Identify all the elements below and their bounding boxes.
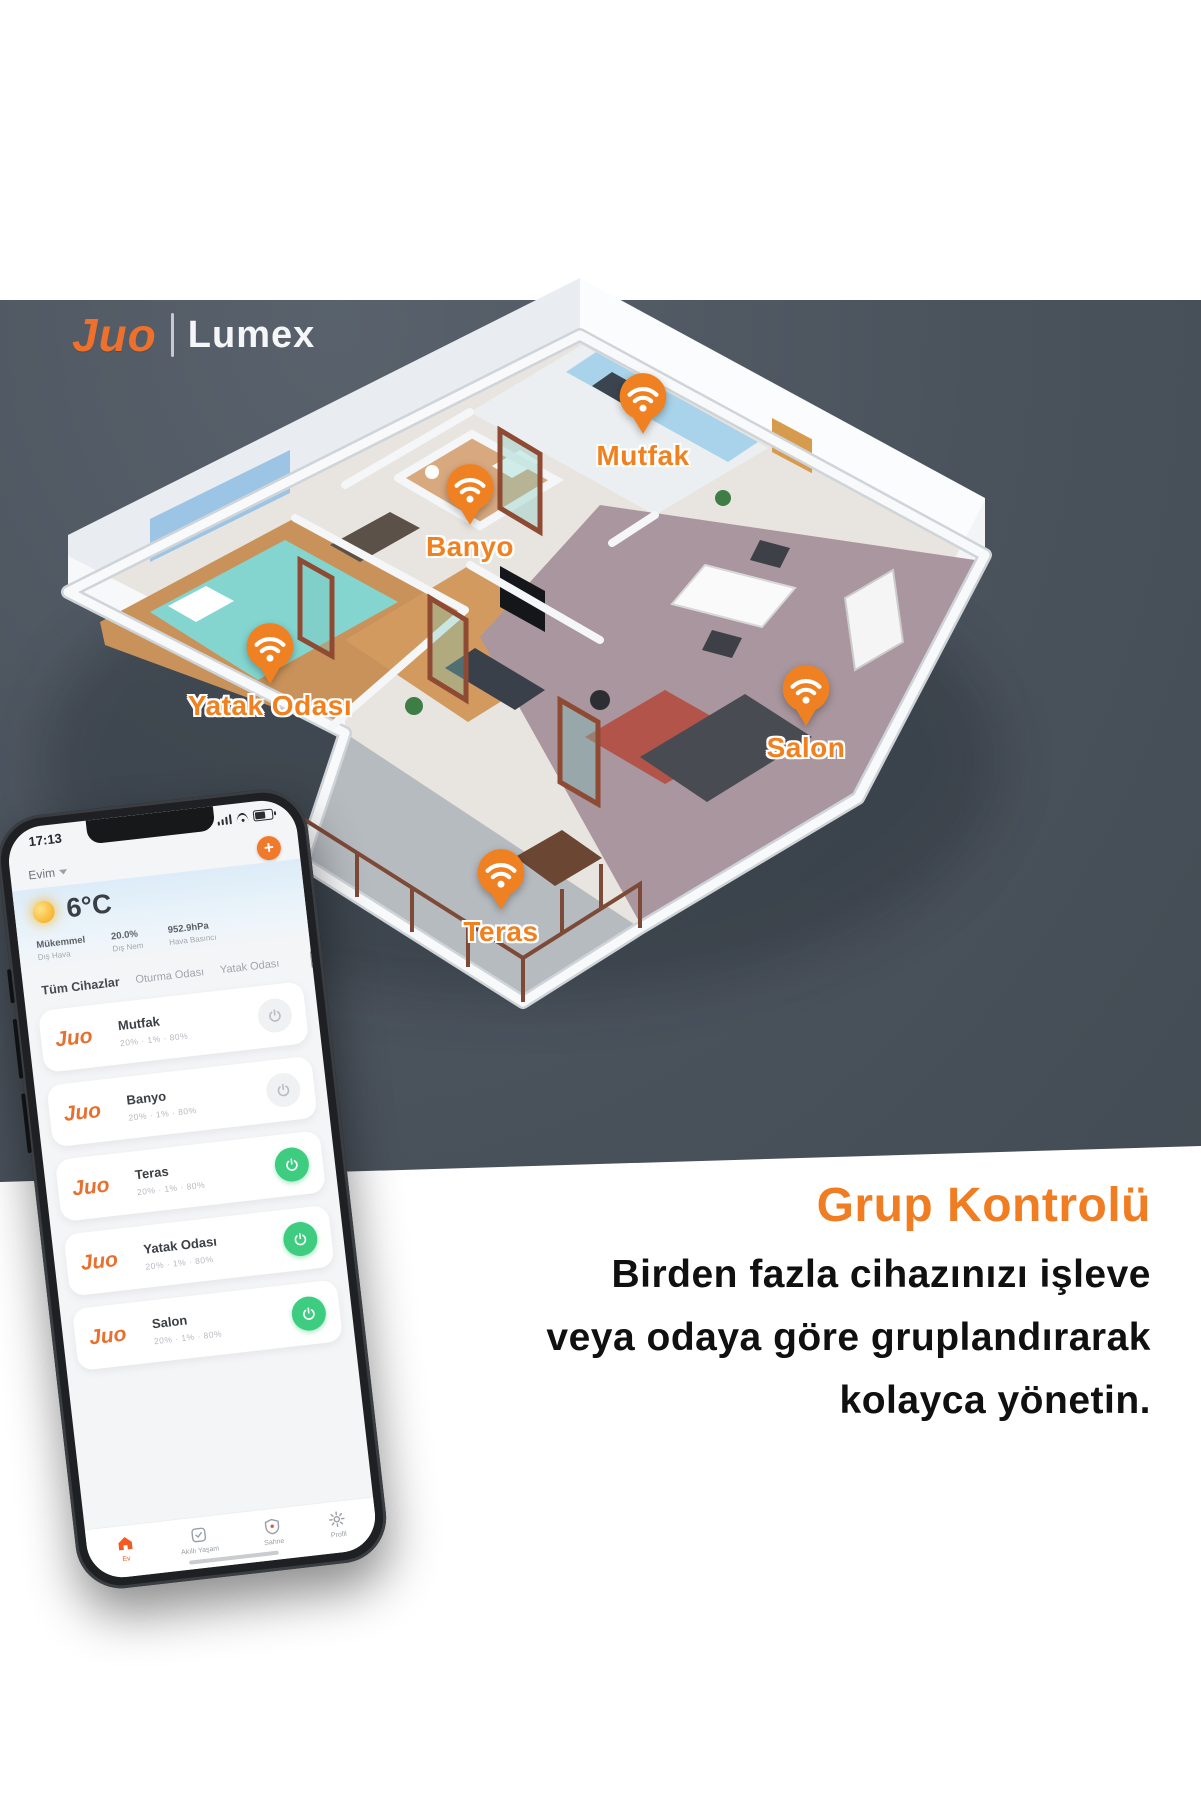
brand-name: Juo (72, 308, 157, 362)
promo-line: kolayca yönetin. (361, 1369, 1151, 1432)
power-toggle[interactable] (256, 997, 294, 1035)
device-brand: Juo (79, 1246, 133, 1276)
nav-label: Sahne (264, 1538, 285, 1547)
tab-yatak-odasi[interactable]: Yatak Odası (219, 957, 280, 976)
logo-divider (171, 313, 174, 357)
power-toggle[interactable] (282, 1220, 320, 1258)
weather-stat-label: Dış Nem (112, 941, 144, 953)
wifi-pin-icon (442, 463, 498, 527)
device-card-yatak-odasi[interactable]: Juo Yatak Odası 20% · 1% · 80% (63, 1205, 334, 1297)
home-icon (114, 1533, 135, 1554)
brand-logo: Juo Lumex (72, 308, 315, 362)
device-card-banyo[interactable]: Juo Banyo 20% · 1% · 80% (46, 1056, 317, 1148)
promo-copy: Grup Kontrolü Birden fazla cihazınızı iş… (361, 1178, 1151, 1432)
product-name: Lumex (188, 314, 315, 357)
power-toggle[interactable] (290, 1295, 328, 1333)
weather-stat-value: 20.0% (110, 928, 142, 942)
room-pin-mutfak: Mutfak (523, 372, 763, 472)
signal-icon (216, 814, 232, 826)
wifi-pin-icon (242, 622, 298, 686)
shield-icon (262, 1516, 283, 1537)
room-pin-teras: Teras (381, 848, 621, 948)
sun-icon (31, 899, 55, 923)
check-square-icon (188, 1524, 209, 1545)
room-label: Teras (381, 916, 621, 948)
nav-label: Profil (331, 1531, 348, 1540)
device-list: Juo Mutfak 20% · 1% · 80% Juo Banyo (25, 974, 373, 1529)
room-label: Salon (686, 732, 926, 764)
weather-stat: 952.9hPa Hava Basıncı (167, 920, 217, 947)
add-device-button[interactable]: + (256, 835, 283, 862)
promo-line: Birden fazla cihazınızı işleve (361, 1243, 1151, 1306)
nav-smart-life[interactable]: Akıllı Yaşam (178, 1523, 219, 1556)
nav-label: Ev (122, 1555, 131, 1563)
device-brand: Juo (71, 1172, 125, 1202)
battery-icon (253, 808, 274, 821)
weather-stat: 20.0% Dış Nem (110, 928, 143, 953)
wifi-status-icon (236, 812, 249, 823)
device-brand: Juo (62, 1097, 116, 1127)
promo-title: Grup Kontrolü (361, 1178, 1151, 1233)
power-toggle[interactable] (265, 1071, 303, 1109)
device-brand: Juo (88, 1321, 142, 1351)
chevron-down-icon (59, 869, 68, 875)
room-label: Banyo (350, 531, 590, 563)
list-view-toggle-icon[interactable] (310, 951, 314, 968)
device-card-salon[interactable]: Juo Salon 20% · 1% · 80% (72, 1279, 343, 1371)
gear-icon (327, 1509, 348, 1530)
room-pin-yatak-odasi: Yatak Odası (150, 622, 390, 722)
power-toggle[interactable] (273, 1146, 311, 1184)
device-brand: Juo (54, 1023, 108, 1053)
nav-label: Akıllı Yaşam (181, 1545, 220, 1556)
nav-profile[interactable]: Profil (327, 1509, 349, 1540)
device-card-teras[interactable]: Juo Teras 20% · 1% · 80% (55, 1130, 326, 1222)
nav-scene[interactable]: Sahne (261, 1516, 284, 1547)
promo-line: veya odaya göre gruplandırarak (361, 1306, 1151, 1369)
room-label: Yatak Odası (150, 690, 390, 722)
wifi-pin-icon (778, 664, 834, 728)
ad-image: Juo Lumex (0, 0, 1201, 1801)
nav-home[interactable]: Ev (114, 1533, 136, 1564)
room-pin-banyo: Banyo (350, 463, 590, 563)
tab-oturma-odasi[interactable]: Oturma Odası (135, 966, 205, 986)
weather-stat: Mükemmel Dış Hava (36, 935, 87, 962)
home-name-label: Evim (28, 866, 56, 883)
room-pin-salon: Salon (686, 664, 926, 764)
home-selector[interactable]: Evim (28, 864, 68, 882)
temperature: 6°C (65, 888, 114, 924)
wifi-pin-icon (473, 848, 529, 912)
wifi-pin-icon (615, 372, 671, 436)
tab-tum-cihazlar[interactable]: Tüm Cihazlar (41, 974, 121, 997)
